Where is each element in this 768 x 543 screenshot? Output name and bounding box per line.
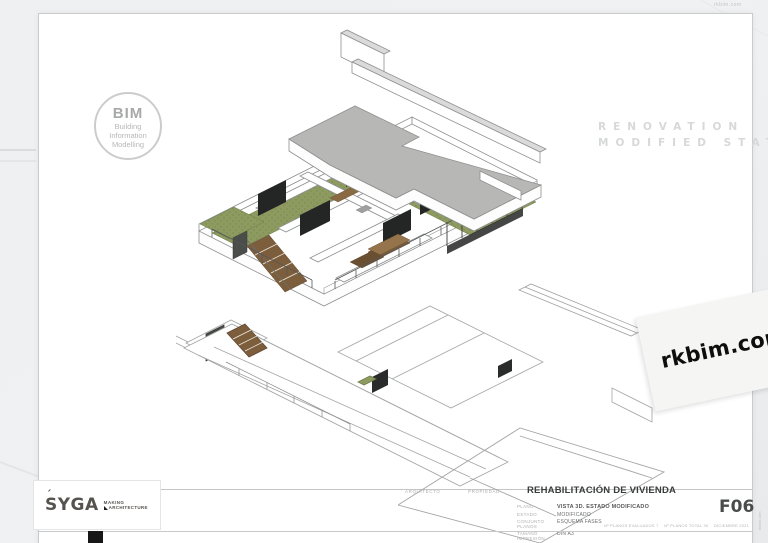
- sheet-code: F06: [719, 497, 754, 517]
- bim-badge-line: Modelling: [96, 140, 160, 149]
- exploded-axonometric-drawing: [0, 0, 768, 543]
- footer-mid: Nº PLANOS TOTAL 30: [664, 523, 708, 528]
- title-block-footer: Nº PLANOS EVALUADOS 7 Nº PLANOS TOTAL 30…: [604, 523, 749, 528]
- watermark-line-2: MODIFIED STATUS: [598, 135, 768, 151]
- owner-label: PROPIEDAD: [468, 489, 500, 494]
- bim-badge-line: Information: [96, 131, 160, 140]
- upper-walkway: [519, 284, 643, 336]
- title-block-row: TAMAÑO IMPRESIÓN DIN A3: [517, 531, 649, 541]
- title-block-bottom-rule: [38, 531, 753, 532]
- watermark-line-1: RENOVATION: [598, 119, 768, 135]
- title-block-row: PLANO VISTA 3D. ESTADO MODIFICADO: [517, 504, 649, 510]
- brand-tagline-bottom: ARCHITECTURE: [104, 505, 148, 510]
- title-block-row: ESTADO MODIFICADO: [517, 512, 649, 518]
- brand-name: ´ SYGA: [45, 495, 99, 515]
- footer-right: DICIEMBRE 2021: [714, 523, 749, 528]
- brand-accent: ´: [46, 488, 52, 501]
- title-block-side-note: rkbim.com: [757, 512, 762, 530]
- brand-logo-card: ´ SYGA MAKING ARCHITECTURE: [33, 480, 161, 530]
- footer-left: Nº PLANOS EVALUADOS 7: [604, 523, 659, 528]
- drawing-sheet-page: BIM Building Information Modelling RENOV…: [0, 0, 768, 543]
- status-watermark: RENOVATION MODIFIED STATUS: [598, 119, 768, 151]
- rkbim-label: rkbim.com: [659, 323, 768, 373]
- brand-black-block: [88, 531, 103, 543]
- triangle-icon: [104, 506, 108, 510]
- bim-badge-line: Building: [96, 122, 160, 131]
- architect-label: ARQUITECTO: [405, 489, 440, 494]
- corner-note: rkbim.com: [714, 2, 742, 8]
- bim-badge-title: BIM: [96, 105, 160, 122]
- project-title: REHABILITACIÓN DE VIVIENDA: [527, 485, 676, 496]
- bim-badge: BIM Building Information Modelling: [94, 92, 162, 160]
- brand-tagline: MAKING ARCHITECTURE: [104, 500, 148, 510]
- lower-floor-level: [176, 306, 652, 486]
